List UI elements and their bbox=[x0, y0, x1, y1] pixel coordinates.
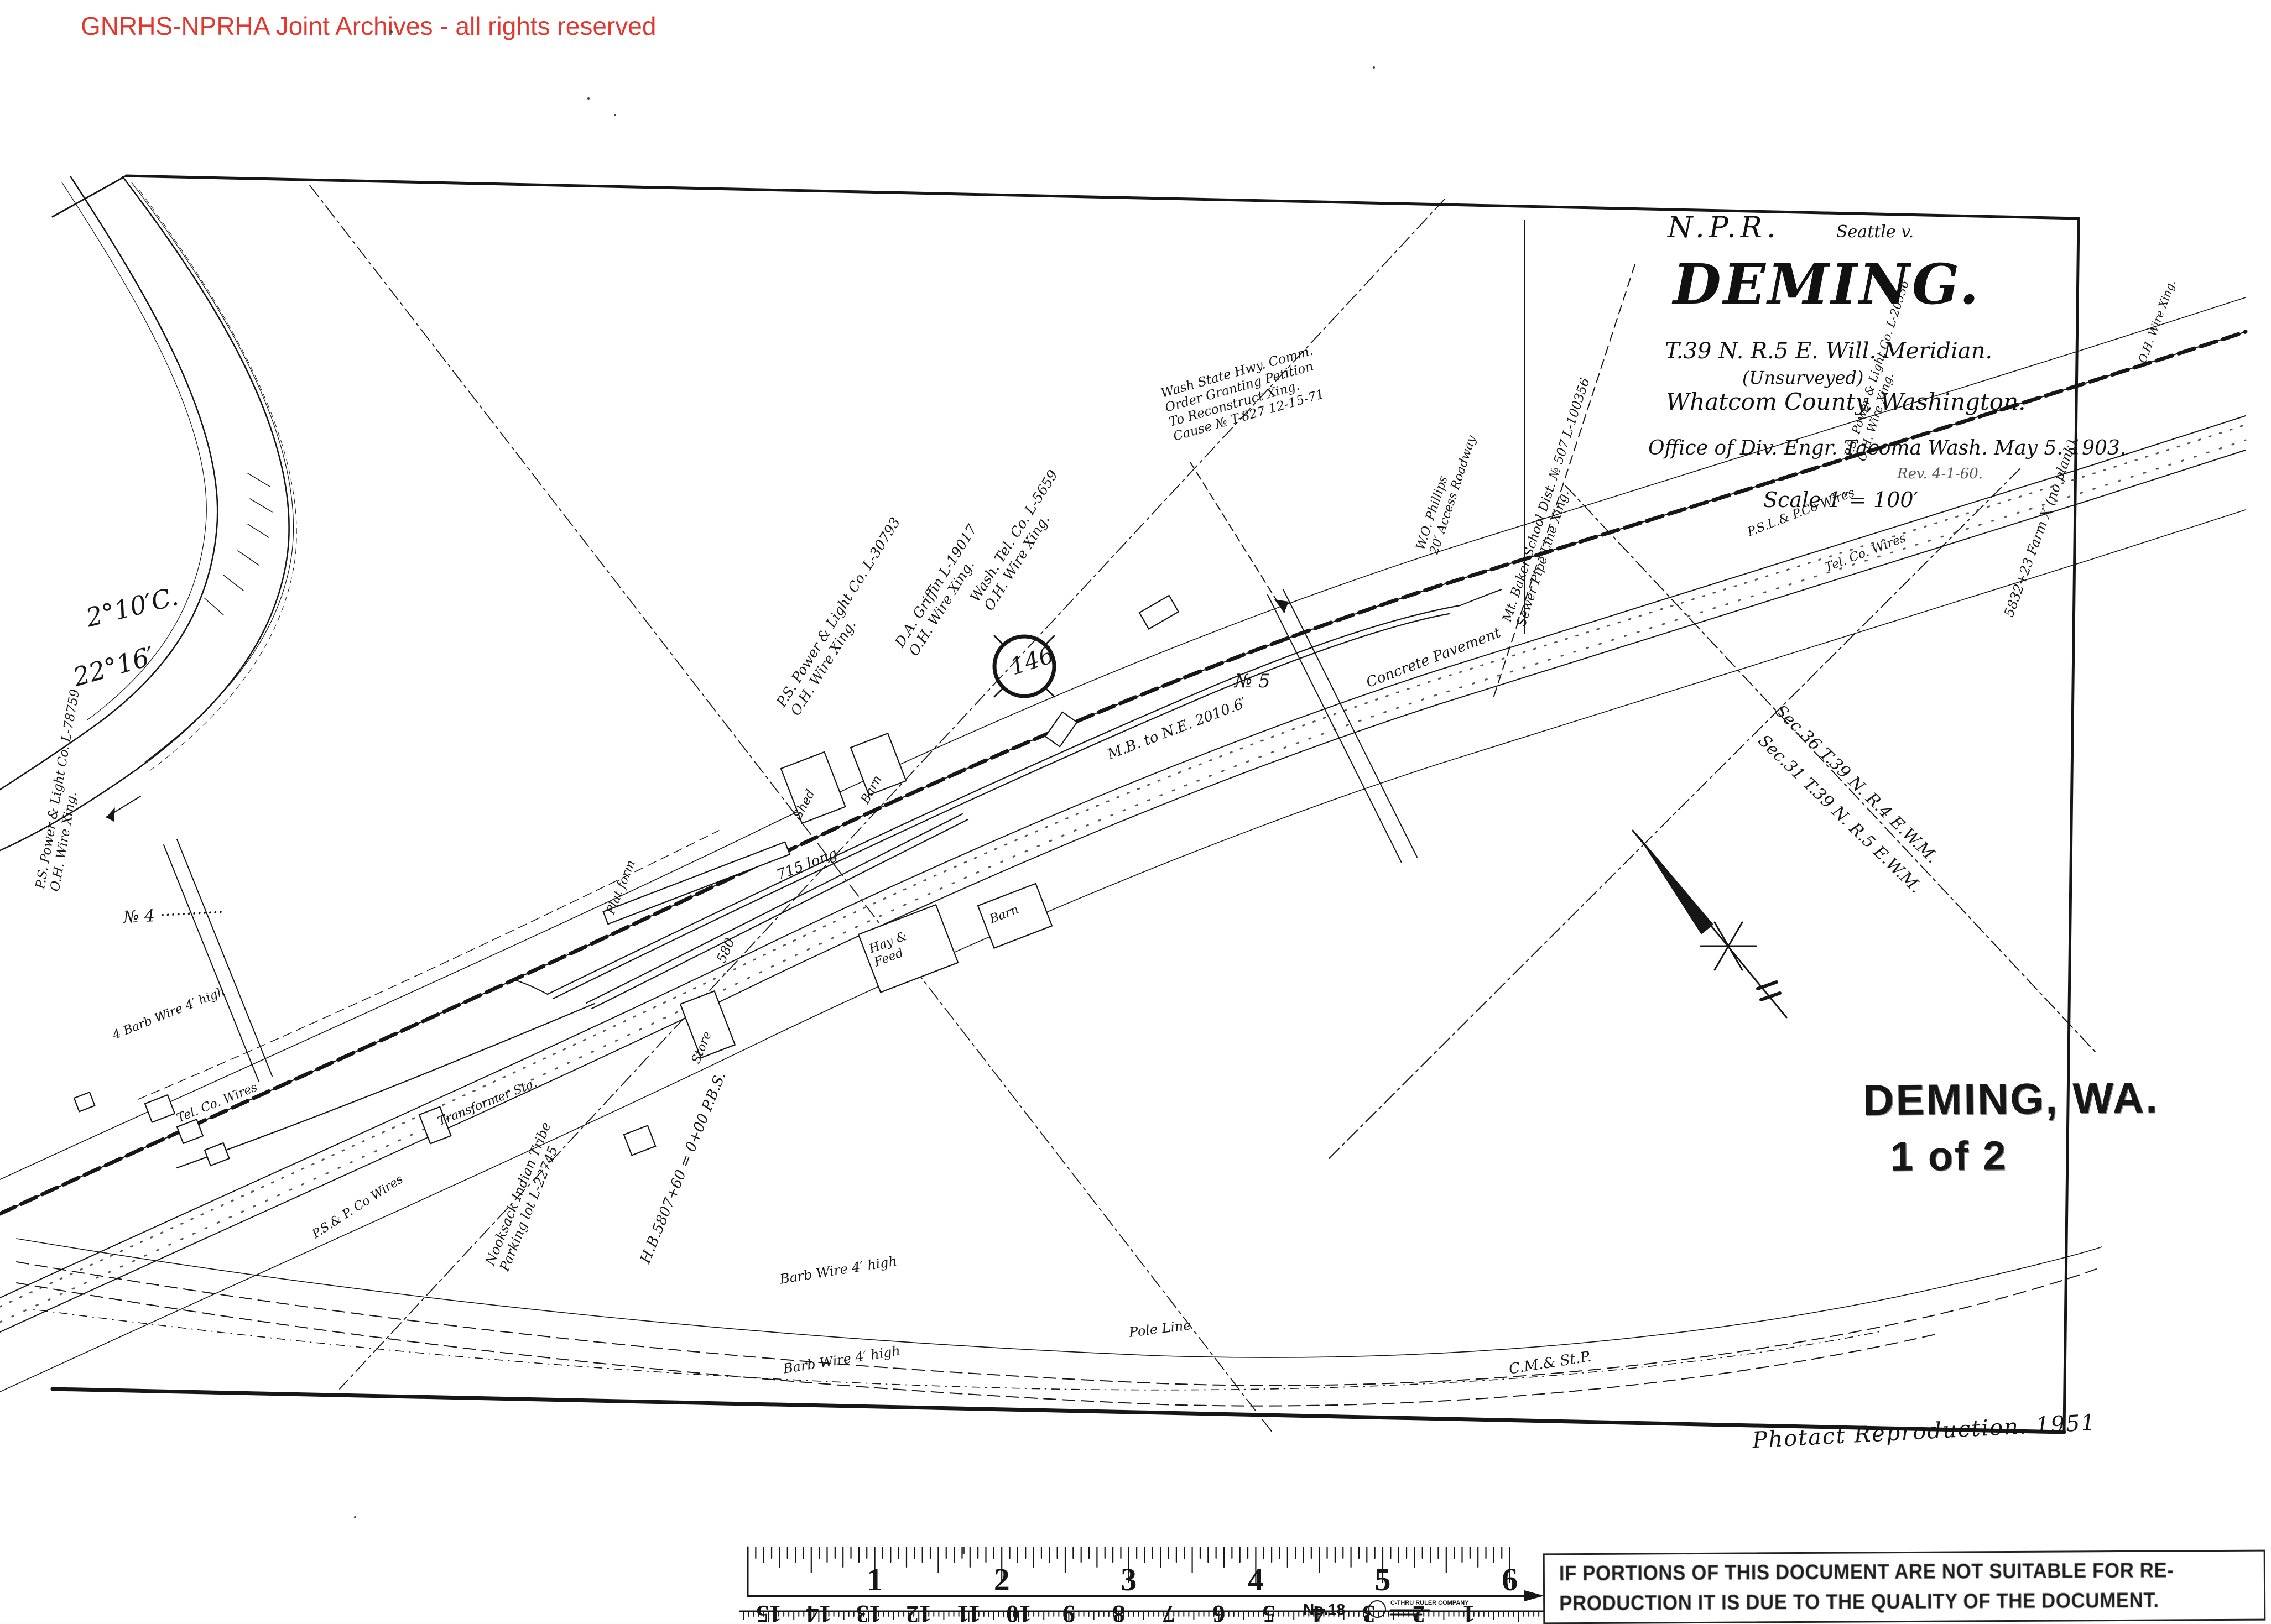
ruler-number: 1 bbox=[1462, 1600, 1475, 1622]
ruler-number: 2 bbox=[1413, 1600, 1425, 1622]
crossing-sign-box bbox=[1139, 596, 1179, 629]
map-border-corner bbox=[53, 176, 126, 217]
disclaimer-line2: PRODUCTION IT IS DUE TO THE QUALITY OF T… bbox=[1559, 1588, 2264, 1616]
ruler-number: 2 bbox=[994, 1562, 1010, 1597]
ruler-number: 12 bbox=[906, 1600, 931, 1622]
ruler-number: 5 bbox=[1263, 1600, 1275, 1622]
map-drawing: 123456No.18C-THRU RULER COMPANY151413121… bbox=[0, 0, 2271, 1622]
ruler-number: 8 bbox=[1112, 1600, 1125, 1622]
crossing-sign-box bbox=[1045, 712, 1077, 747]
township-line: T.39 N. R.5 E. Will. Meridian. bbox=[1665, 338, 1992, 364]
office-line: Office of Div. Engr. Tacoma Wash. May 5.… bbox=[1648, 437, 2126, 459]
division-note: Seattle v. bbox=[1836, 222, 1914, 242]
river bbox=[0, 177, 296, 850]
ruler-number: 13 bbox=[856, 1600, 882, 1622]
quality-disclaimer-stamp: IF PORTIONS OF THIS DOCUMENT ARE NOT SUI… bbox=[1543, 1550, 2266, 1624]
ruler-number: 4 bbox=[1312, 1600, 1325, 1622]
bottom-fences bbox=[17, 1239, 2102, 1406]
station-stamp: DEMING, WA. bbox=[1863, 1073, 2159, 1126]
leader-arrow bbox=[1190, 462, 1289, 613]
archive-watermark: GNRHS-NPRHA Joint Archives - all rights … bbox=[81, 11, 656, 41]
ruler-number: C-THRU RULER COMPANY bbox=[1390, 1600, 1469, 1606]
station-name: DEMING. bbox=[1673, 252, 1981, 317]
map-border-bottom bbox=[53, 1389, 2064, 1432]
survey-note: (Unsurveyed) bbox=[1742, 367, 1863, 388]
sheet-number-stamp: 1 of 2 bbox=[1890, 1132, 2008, 1180]
ruler-number: 11 bbox=[957, 1600, 981, 1622]
ruler-number: 10 bbox=[1006, 1600, 1032, 1622]
ruler-number: 6 bbox=[1502, 1562, 1518, 1597]
scanned-map-page: 123456No.18C-THRU RULER COMPANY151413121… bbox=[0, 0, 2271, 1622]
map-border-top bbox=[126, 176, 2079, 218]
north-arrow bbox=[1633, 831, 1786, 1017]
ruler-number: 3 bbox=[1121, 1562, 1137, 1597]
ruler-number: 7 bbox=[1163, 1600, 1175, 1622]
revision-note: Rev. 4-1-60. bbox=[1897, 466, 1983, 482]
map-annotation: № 5 bbox=[1235, 670, 1270, 692]
ruler-number: 1 bbox=[867, 1562, 883, 1597]
ruler-number: 15 bbox=[756, 1600, 782, 1622]
railroad-initials: N.P.R. bbox=[1668, 211, 1780, 244]
ruler-number: 6 bbox=[1212, 1600, 1225, 1622]
ruler-number: 5 bbox=[1375, 1562, 1391, 1597]
ruler-number: 9 bbox=[1062, 1600, 1075, 1622]
county-line: Whatcom County, Washington. bbox=[1666, 388, 2025, 415]
shed bbox=[781, 752, 845, 823]
crossing-roads bbox=[164, 589, 1417, 1082]
ruler-number: 3 bbox=[1362, 1600, 1375, 1622]
disclaimer-line1: IF PORTIONS OF THIS DOCUMENT ARE NOT SUI… bbox=[1559, 1558, 2264, 1586]
ruler-graphics: 123456No.18C-THRU RULER COMPANY151413121… bbox=[740, 1547, 1544, 1622]
ruler-number: 14 bbox=[806, 1600, 831, 1622]
map-border-right bbox=[2064, 218, 2079, 1432]
platform bbox=[603, 842, 790, 925]
ruler-number: 4 bbox=[1248, 1562, 1264, 1597]
